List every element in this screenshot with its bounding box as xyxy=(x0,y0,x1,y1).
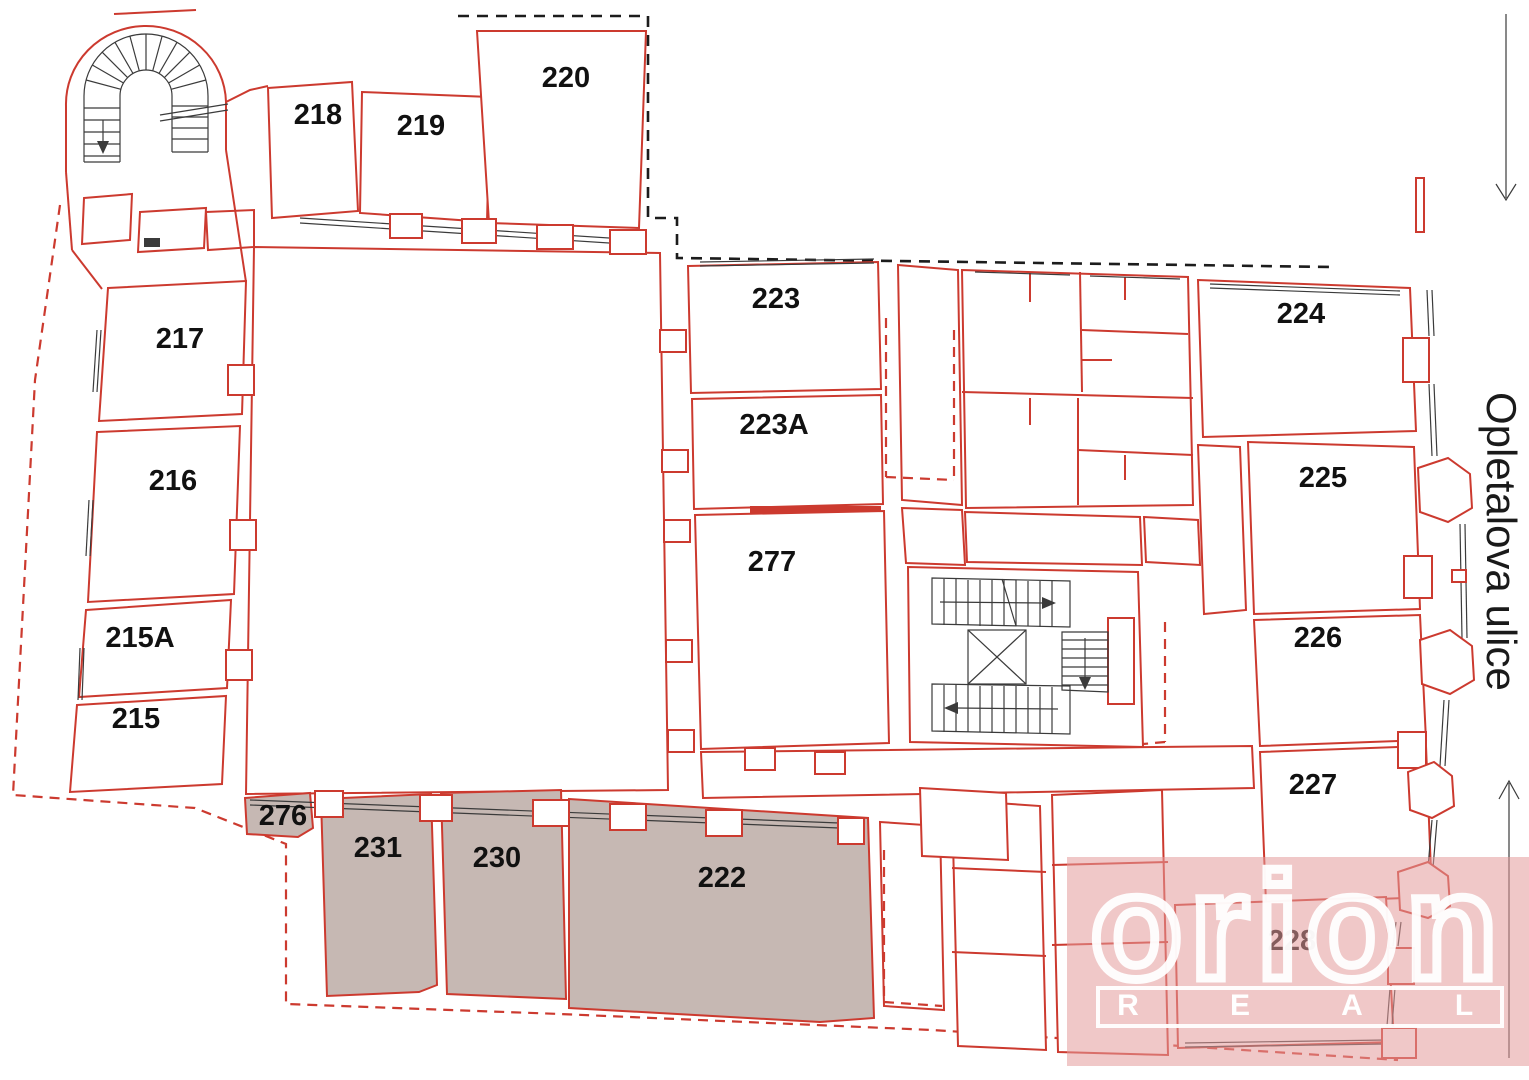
shaft-corridor xyxy=(898,265,962,505)
room-227-label: 227 xyxy=(1289,769,1337,801)
room-225-label: 225 xyxy=(1299,462,1347,494)
room-218-label: 218 xyxy=(294,99,342,131)
room-277-label: 277 xyxy=(748,546,796,578)
stair-arrow-head xyxy=(97,141,109,154)
watermark-band-letter: L xyxy=(1455,989,1473,1022)
chimney-stub xyxy=(1416,178,1424,232)
stub-room xyxy=(920,788,1008,860)
room-223-label: 223 xyxy=(752,283,800,315)
room-219-label: 219 xyxy=(397,110,445,142)
stair-landing xyxy=(206,210,254,250)
room-230-label: 230 xyxy=(473,842,521,874)
room-215-label: 215 xyxy=(112,703,160,735)
watermark-band-letter: R xyxy=(1117,989,1139,1022)
street-name-label: Opletalova ulice xyxy=(1478,392,1525,691)
sanitary-cluster xyxy=(962,270,1193,508)
watermark-band-letter: E xyxy=(1230,989,1250,1022)
corridor-L xyxy=(1198,445,1246,614)
stair-pier xyxy=(1108,618,1134,704)
room-224-label: 224 xyxy=(1277,298,1325,330)
room-222-label: 222 xyxy=(698,862,746,894)
stair-hall-a xyxy=(82,194,132,244)
room-216-label: 216 xyxy=(149,465,197,497)
room-231-outline xyxy=(321,794,437,996)
room-223-outline xyxy=(688,262,881,393)
corridor-above-stairs xyxy=(965,512,1142,565)
room-220-label: 220 xyxy=(542,62,590,94)
room-217-label: 217 xyxy=(156,323,204,355)
watermark-brand-text: orion xyxy=(1091,842,1506,1010)
room-231-label: 231 xyxy=(354,832,402,864)
watermark-band-letter: A xyxy=(1341,989,1363,1022)
room-216-outline xyxy=(88,426,240,602)
room-226-label: 226 xyxy=(1294,622,1342,654)
room-215A-label: 215A xyxy=(105,622,174,654)
central-staircase xyxy=(908,567,1143,747)
bay-window xyxy=(1408,762,1454,818)
room-220-outline xyxy=(477,31,646,228)
bay-window xyxy=(1418,458,1472,522)
floor-plan-page: 217 216 215A 215 218 219 220 223 223A 27… xyxy=(0,0,1529,1080)
section-cut-line xyxy=(160,110,228,121)
door-mark xyxy=(144,238,160,247)
room-276-label: 276 xyxy=(259,800,307,832)
corridor-piece xyxy=(1144,517,1200,565)
landing xyxy=(902,508,965,565)
floor-plan-svg: 217 216 215A 215 218 219 220 223 223A 27… xyxy=(0,0,1529,1080)
watermark: orion R E A L xyxy=(1067,842,1529,1066)
lower-corridor xyxy=(701,746,1254,798)
central-hall xyxy=(206,210,668,794)
room-223A-label: 223A xyxy=(739,409,808,441)
bay-window xyxy=(1420,630,1474,694)
